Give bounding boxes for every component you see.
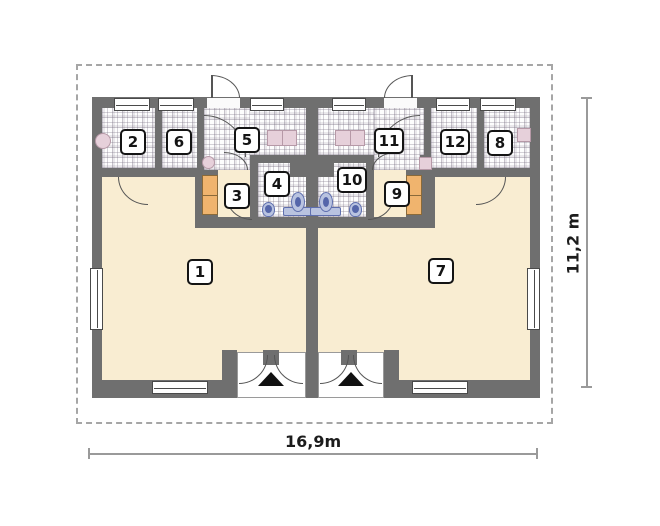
dimension-tick — [581, 386, 592, 388]
wall-7-9 — [421, 168, 429, 222]
room-4-label: 4 — [264, 171, 290, 197]
wall-mid-bottom-left-b — [252, 217, 306, 228]
door-opening — [207, 98, 240, 108]
window — [412, 381, 468, 394]
cooktop-icon — [335, 130, 365, 146]
dimension-tick — [536, 448, 538, 459]
window — [527, 268, 540, 330]
toilet-icon — [262, 202, 275, 217]
room-12-label: 12 — [440, 129, 470, 155]
room-7-label: 7 — [428, 258, 454, 284]
wall-under-6 — [148, 168, 195, 177]
window — [114, 98, 150, 111]
chimney — [290, 159, 334, 177]
wall-under-12 — [428, 168, 476, 177]
door-opening — [384, 98, 417, 108]
window — [332, 98, 366, 111]
stairs-icon — [202, 175, 218, 215]
window — [436, 98, 470, 111]
room-5-label: 5 — [234, 127, 260, 153]
dimension-line-vertical — [586, 97, 588, 388]
window — [158, 98, 194, 111]
wall-2-6 — [155, 108, 162, 168]
width-dimension-label: 16,9m — [285, 432, 341, 451]
wall-under-2 — [102, 168, 118, 177]
window — [250, 98, 284, 111]
window — [90, 268, 103, 330]
wall-3-4-a — [250, 163, 258, 180]
dimension-line-horizontal — [88, 453, 538, 455]
dimension-tick — [581, 97, 592, 99]
room-6-label: 6 — [166, 129, 192, 155]
wall-under-8 — [506, 168, 530, 177]
room-11-label: 11 — [374, 128, 404, 154]
dimension-tick — [88, 448, 90, 459]
height-dimension-label: 11,2 m — [564, 211, 583, 277]
washbasin-icon — [291, 192, 305, 212]
wall-mid-bottom-right-b — [398, 217, 428, 228]
wall-mid-bottom-left-a — [196, 217, 226, 228]
entrance-arrow-icon — [258, 372, 284, 386]
room-10-label: 10 — [337, 167, 367, 193]
floor-plan: 1 2 3 4 5 6 7 8 9 10 11 12 16,9m 11,2 m — [0, 0, 660, 526]
room-3-label: 3 — [224, 183, 250, 209]
wall-mid-bottom-right-a — [318, 217, 372, 228]
room-2-label: 2 — [120, 129, 146, 155]
toilet-icon — [349, 202, 362, 217]
room-9-label: 9 — [384, 181, 410, 207]
sink-icon — [419, 157, 432, 170]
sink-icon — [202, 156, 215, 169]
cooktop-icon — [267, 130, 297, 146]
washbasin-icon — [319, 192, 333, 212]
porch-left-post — [222, 350, 237, 398]
sink-icon — [517, 128, 531, 142]
window — [480, 98, 516, 111]
wall-12-8 — [477, 108, 484, 168]
porch-right-post — [384, 350, 399, 398]
room-8-label: 8 — [487, 130, 513, 156]
entrance-arrow-icon — [338, 372, 364, 386]
sink-icon — [95, 133, 111, 149]
room-1-label: 1 — [187, 259, 213, 285]
window — [152, 381, 208, 394]
party-wall — [306, 97, 318, 398]
